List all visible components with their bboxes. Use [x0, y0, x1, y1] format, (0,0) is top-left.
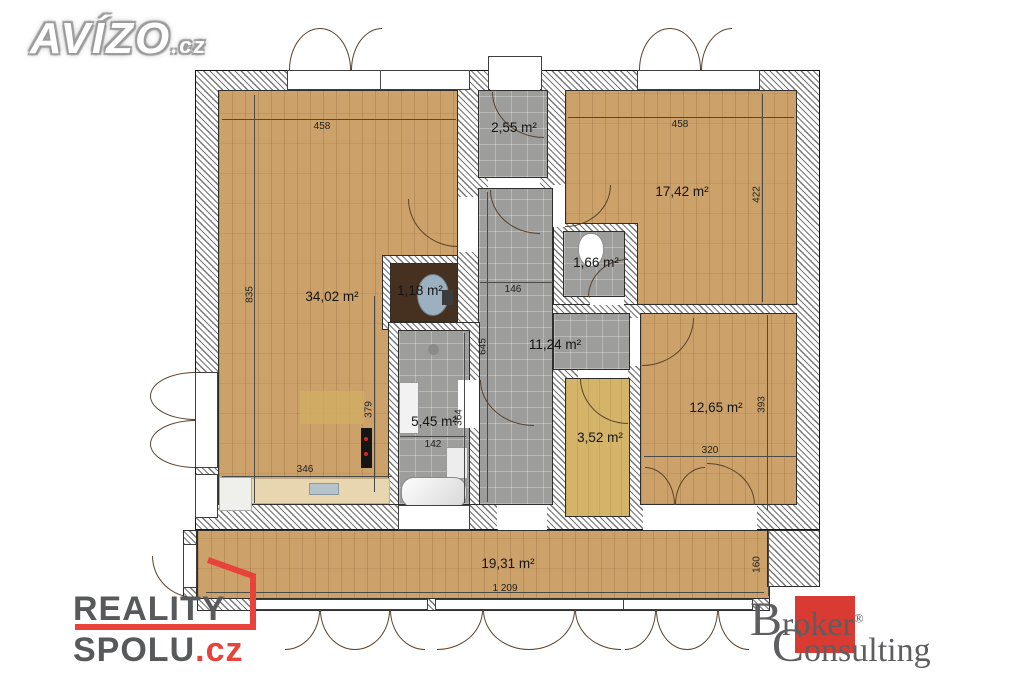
window	[195, 474, 218, 518]
avizo-logo-text: AVÍZO	[30, 14, 171, 63]
dimension-label: 1 209	[485, 583, 525, 594]
door-opening	[488, 178, 540, 188]
room-area-label: 17,42 m²	[647, 185, 717, 200]
dimension-line	[644, 456, 796, 457]
room-area-label: 34,02 m²	[297, 290, 367, 305]
dimension-line	[222, 476, 392, 477]
dimension-label: 379	[364, 395, 375, 425]
window-casement-arc	[687, 610, 718, 650]
window-casement-arc	[355, 610, 390, 650]
reality-logo-spolu: SPOLU	[73, 631, 195, 669]
dimension-label: 160	[752, 550, 763, 580]
window-casement-arc	[150, 396, 195, 420]
bathtub	[401, 477, 467, 508]
dimension-label: 393	[757, 390, 768, 420]
window-casement-arc	[483, 610, 529, 650]
window	[637, 70, 760, 90]
room-area-label: 19,31 m²	[473, 557, 543, 572]
broker-logo-line2: Consulting	[772, 618, 931, 673]
window-casement-arc	[150, 372, 195, 396]
dimension-line	[222, 119, 456, 120]
dimension-label: 346	[285, 464, 325, 475]
window-casement-arc	[639, 28, 670, 70]
room-area-label: 3,52 m²	[565, 431, 635, 446]
room-area-label: 1,18 m²	[385, 284, 455, 299]
dimension-label: 835	[245, 280, 256, 310]
door-opening	[458, 197, 478, 252]
right-wall-extension	[767, 530, 820, 587]
door-opening	[578, 370, 628, 378]
balcony-window	[250, 599, 428, 610]
window-casement-arc	[150, 444, 195, 468]
floorplan-page: 458 835 346 379 458 422 146 645 142 364 …	[0, 0, 1024, 683]
dimension-label: 146	[493, 284, 533, 295]
door-opening	[643, 505, 757, 530]
reality-logo-tld: .cz	[195, 631, 243, 669]
shower-drain	[428, 344, 439, 355]
window-casement-arc	[575, 610, 621, 650]
room-area-label: 5,45 m²	[399, 415, 469, 430]
dimension-line	[568, 117, 794, 118]
window-casement-arc	[625, 610, 656, 650]
window	[195, 372, 218, 468]
window-casement-arc	[351, 28, 382, 70]
window-casement-arc	[718, 610, 749, 650]
dimension-label: 422	[752, 180, 763, 210]
room-area-label: 12,65 m²	[681, 401, 751, 416]
dimension-label: 142	[413, 439, 453, 450]
dimension-label: 645	[478, 332, 489, 362]
window-casement-arc	[701, 28, 732, 70]
window-casement-arc	[150, 420, 195, 444]
dimension-line	[768, 532, 769, 596]
window-casement-arc	[285, 610, 320, 650]
window-casement-arc	[529, 610, 575, 650]
dimension-line	[400, 436, 466, 437]
kitchen-sink	[309, 483, 339, 495]
dimension-label: 458	[302, 121, 342, 132]
avizo-logo: AVÍZO.cz	[30, 14, 207, 64]
rug	[300, 391, 364, 424]
door-opening	[497, 505, 547, 530]
window-casement-arc	[437, 610, 483, 650]
room-area-label: 2,55 m²	[479, 121, 549, 136]
window-casement-arc	[670, 28, 701, 70]
window	[287, 70, 470, 90]
tv-unit	[361, 428, 372, 468]
window-casement-arc	[390, 610, 425, 650]
window-casement-arc	[656, 610, 687, 650]
avizo-logo-tld: .cz	[171, 33, 206, 58]
balcony-window	[623, 599, 753, 610]
window-casement-arc	[289, 28, 320, 70]
dimension-line	[480, 282, 553, 283]
door-opening	[630, 318, 640, 366]
dimension-label: 320	[690, 445, 730, 456]
kitchen-cabinet	[219, 477, 252, 511]
dimension-label: 458	[660, 119, 700, 130]
tv-led	[364, 437, 368, 441]
door-opening	[553, 185, 565, 227]
window-casement-arc	[320, 610, 355, 650]
window-mullion	[380, 70, 381, 90]
balcony-window	[435, 599, 625, 610]
window-casement-arc	[320, 28, 351, 70]
room-area-label: 1,66 m²	[561, 256, 631, 271]
reality-logo-line2: SPOLU.cz	[73, 631, 243, 670]
room-area-label: 11,24 m²	[520, 338, 590, 353]
balcony-window	[398, 505, 470, 530]
door-opening	[490, 70, 540, 90]
door-opening	[590, 297, 624, 305]
tv-led	[364, 452, 368, 456]
reality-logo-line1: REALITY	[73, 590, 225, 629]
